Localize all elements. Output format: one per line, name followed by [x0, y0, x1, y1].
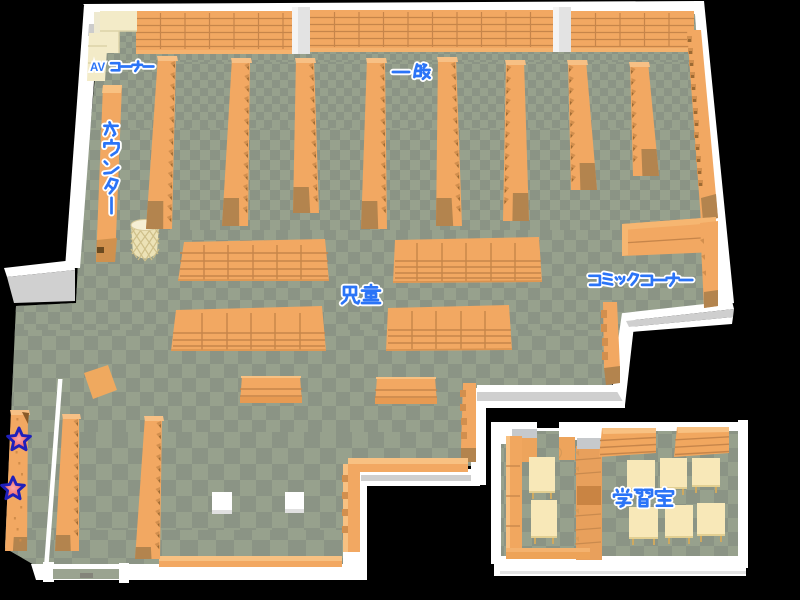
svg-text:AV: AV	[90, 62, 105, 74]
